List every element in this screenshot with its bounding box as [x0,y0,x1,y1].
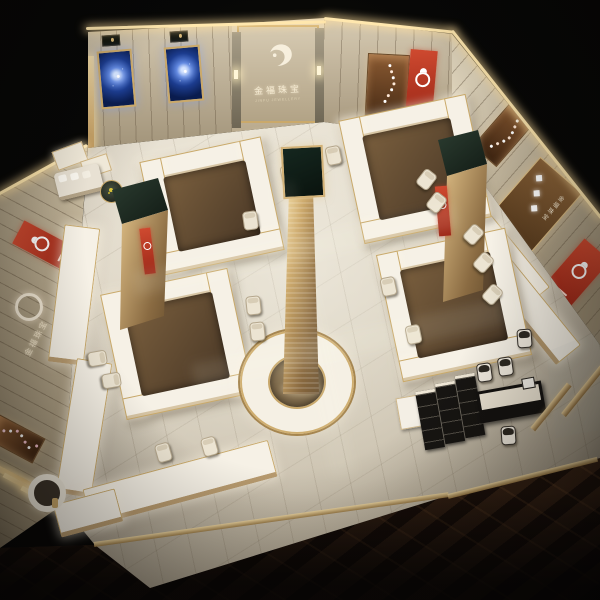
gold-vase [52,498,58,508]
display-chair [242,210,259,231]
brand-ring-sign-icon [15,293,43,321]
gold-mesh-column [283,190,319,394]
wall-sconce [315,28,324,124]
desk-chair [516,328,532,348]
desk-monitor [521,377,536,390]
wall-light-strip [88,56,94,148]
display-chair [245,295,262,315]
back-wall-led-section [88,24,232,148]
brand-logo-swirl-icon [261,39,301,75]
display-chair [249,321,266,341]
led-screen [97,49,137,110]
brand-plaque [170,30,189,42]
pedestal-stool [28,474,66,512]
brand-logo-wall: 金福珠宝 JINFU JEWELLERY [232,18,324,132]
brand-plaque [102,34,121,46]
jewelry-store-3d-render: 金福珠宝 JINFU JEWELLERY ◆ ◆ ◆ 金福珠宝 金福珠宝 [0,0,600,600]
desk-chair [500,425,516,445]
led-screen [164,45,205,104]
wall-sconce [232,32,241,128]
desk-chair [497,356,514,377]
column-screen [281,145,326,199]
logo-panel-frame: 金福珠宝 JINFU JEWELLERY [237,25,319,123]
desk-chair [476,362,493,383]
